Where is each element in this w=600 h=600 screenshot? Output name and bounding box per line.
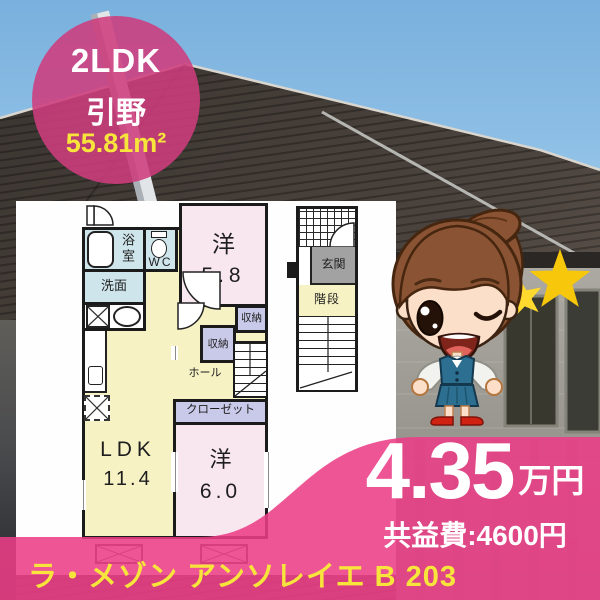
rent-amount: 4.35 bbox=[366, 436, 514, 506]
rent-price: 4.35 万円 bbox=[350, 436, 600, 506]
building-name: ラ・メゾン アンソレイエ B 203 bbox=[10, 553, 475, 595]
listing-flyer: 2LDK 引野 55.81m² 浴室 WC 洗面 bbox=[0, 0, 600, 600]
common-fee: 共益費:4600円 bbox=[350, 514, 600, 554]
rent-unit: 万円 bbox=[518, 454, 584, 506]
